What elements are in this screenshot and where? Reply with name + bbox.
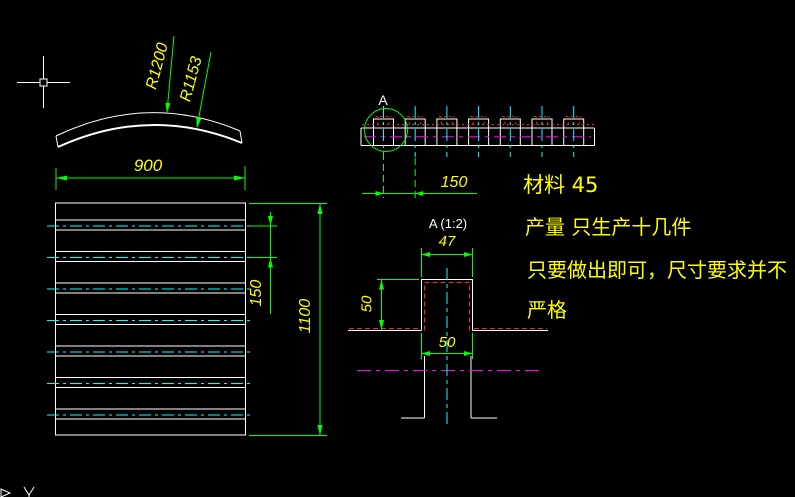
detail-a-view[interactable]: A (1:2) 47 50 (348, 216, 548, 428)
notes-block[interactable]: 材料 45 产量 只生产十几件 只要做出即可，尺寸要求并不 严格 (523, 173, 787, 322)
r1153-label[interactable]: R1153 (177, 55, 205, 104)
pitch-dimension-150[interactable]: 150 (248, 212, 277, 314)
dim900-arrow-left (56, 176, 67, 181)
dim1100-arrow-top (318, 204, 323, 215)
r1200-label[interactable]: R1200 (143, 41, 172, 91)
side-dim150-value[interactable]: 150 (441, 174, 468, 191)
dim47-value[interactable]: 47 (439, 233, 456, 250)
dim50h-value[interactable]: 50 (359, 295, 376, 312)
dim150-value[interactable]: 150 (248, 280, 265, 307)
length-dimension-1100[interactable]: 1100 (249, 204, 327, 436)
dim50w-arrow-right (464, 351, 473, 356)
r1200-arrowhead (165, 103, 170, 113)
arc-blank-view[interactable] (56, 113, 242, 147)
radius-dimension-r1200[interactable]: R1200 (143, 36, 174, 113)
dim900-arrow-right (234, 176, 245, 181)
side-dim150-arrow-right (415, 191, 423, 196)
dim1100-value[interactable]: 1100 (297, 299, 314, 334)
width-dimension-900[interactable]: 900 (56, 156, 245, 190)
dim50h-arrow-top (379, 280, 384, 290)
detail-dim-50-height[interactable]: 50 (359, 280, 420, 331)
dim50w-arrow-left (422, 351, 431, 356)
side-hidden-lines[interactable] (362, 117, 594, 125)
ucs-arrow-glyph (1, 489, 10, 497)
detail-legs[interactable] (401, 356, 497, 418)
side-vertical-centerlines[interactable] (384, 106, 574, 157)
dim47-arrow-right (464, 252, 473, 257)
ucs-letter-glyph (24, 487, 34, 497)
note-requirement-line2[interactable]: 严格 (527, 298, 567, 322)
dim1100-arrow-bottom (318, 425, 323, 436)
cad-drawing-canvas[interactable]: R1200 R1153 900 (0, 0, 795, 497)
dim900-value[interactable]: 900 (134, 156, 163, 175)
dim150-arrow-bottom (268, 258, 273, 268)
note-quantity[interactable]: 产量 只生产十几件 (525, 215, 691, 239)
plan-rib-lines[interactable] (56, 220, 245, 419)
side-dim150-arrow-left (376, 191, 384, 196)
side-pitch-dimension-150[interactable]: 150 (362, 153, 477, 198)
detail-title[interactable]: A (1:2) (429, 216, 467, 231)
crosshair-cursor (17, 56, 70, 108)
plan-view[interactable] (47, 203, 253, 435)
ucs-icon (1, 487, 34, 497)
note-material[interactable]: 材料 45 (523, 173, 598, 197)
dim47-arrow-left (422, 252, 431, 257)
note-requirement-line1[interactable]: 只要做出即可，尺寸要求并不 (527, 258, 787, 282)
arc-inner-line[interactable] (58, 125, 242, 147)
side-view[interactable]: A (361, 92, 595, 157)
plan-outline[interactable] (56, 203, 246, 435)
detail-mark-a[interactable]: A (378, 92, 388, 108)
r1153-arrowhead (196, 118, 201, 128)
dim150-arrow-top (268, 216, 273, 226)
pickbox (40, 79, 47, 86)
plan-rib-centerlines[interactable] (47, 226, 253, 415)
